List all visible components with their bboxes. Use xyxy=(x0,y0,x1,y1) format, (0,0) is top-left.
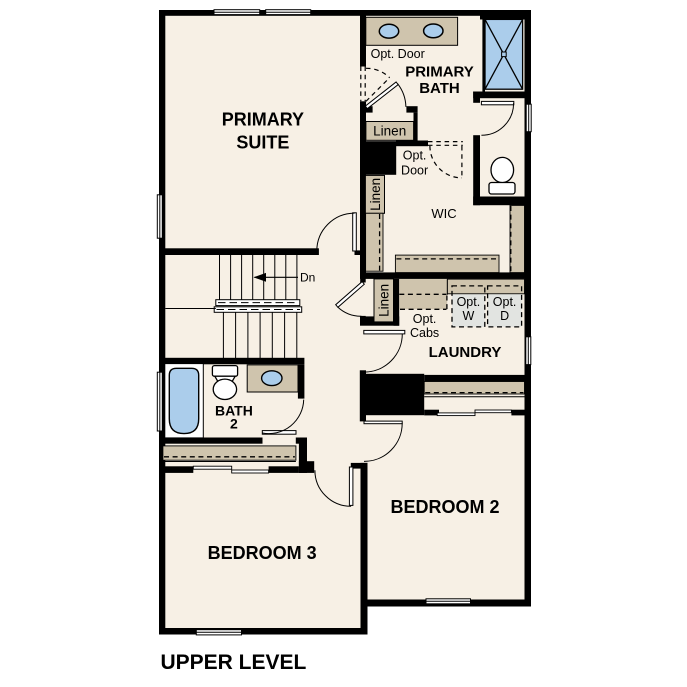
svg-text:Door: Door xyxy=(401,164,428,178)
svg-text:PRIMARY: PRIMARY xyxy=(405,63,474,80)
svg-text:PRIMARY: PRIMARY xyxy=(222,109,304,129)
svg-text:Dn: Dn xyxy=(300,271,315,285)
svg-text:Opt.: Opt. xyxy=(457,295,481,309)
svg-text:2: 2 xyxy=(230,415,238,431)
svg-text:W: W xyxy=(462,309,474,323)
svg-text:Cabs: Cabs xyxy=(410,326,439,340)
svg-text:BATH: BATH xyxy=(419,80,460,97)
svg-text:LAUNDRY: LAUNDRY xyxy=(429,344,502,361)
svg-text:Linen: Linen xyxy=(377,284,392,317)
svg-text:Opt.: Opt. xyxy=(493,295,517,309)
svg-text:Opt.: Opt. xyxy=(403,148,427,162)
svg-text:WIC: WIC xyxy=(431,206,456,221)
svg-text:Linen: Linen xyxy=(368,178,383,211)
svg-text:UPPER LEVEL: UPPER LEVEL xyxy=(161,651,307,674)
svg-text:BEDROOM 3: BEDROOM 3 xyxy=(208,543,317,563)
svg-text:D: D xyxy=(500,309,509,323)
svg-text:Opt. Door: Opt. Door xyxy=(371,47,425,61)
svg-text:Linen: Linen xyxy=(373,124,406,139)
svg-text:Opt.: Opt. xyxy=(413,312,437,326)
svg-text:SUITE: SUITE xyxy=(236,133,289,153)
svg-text:BEDROOM 2: BEDROOM 2 xyxy=(390,497,499,517)
